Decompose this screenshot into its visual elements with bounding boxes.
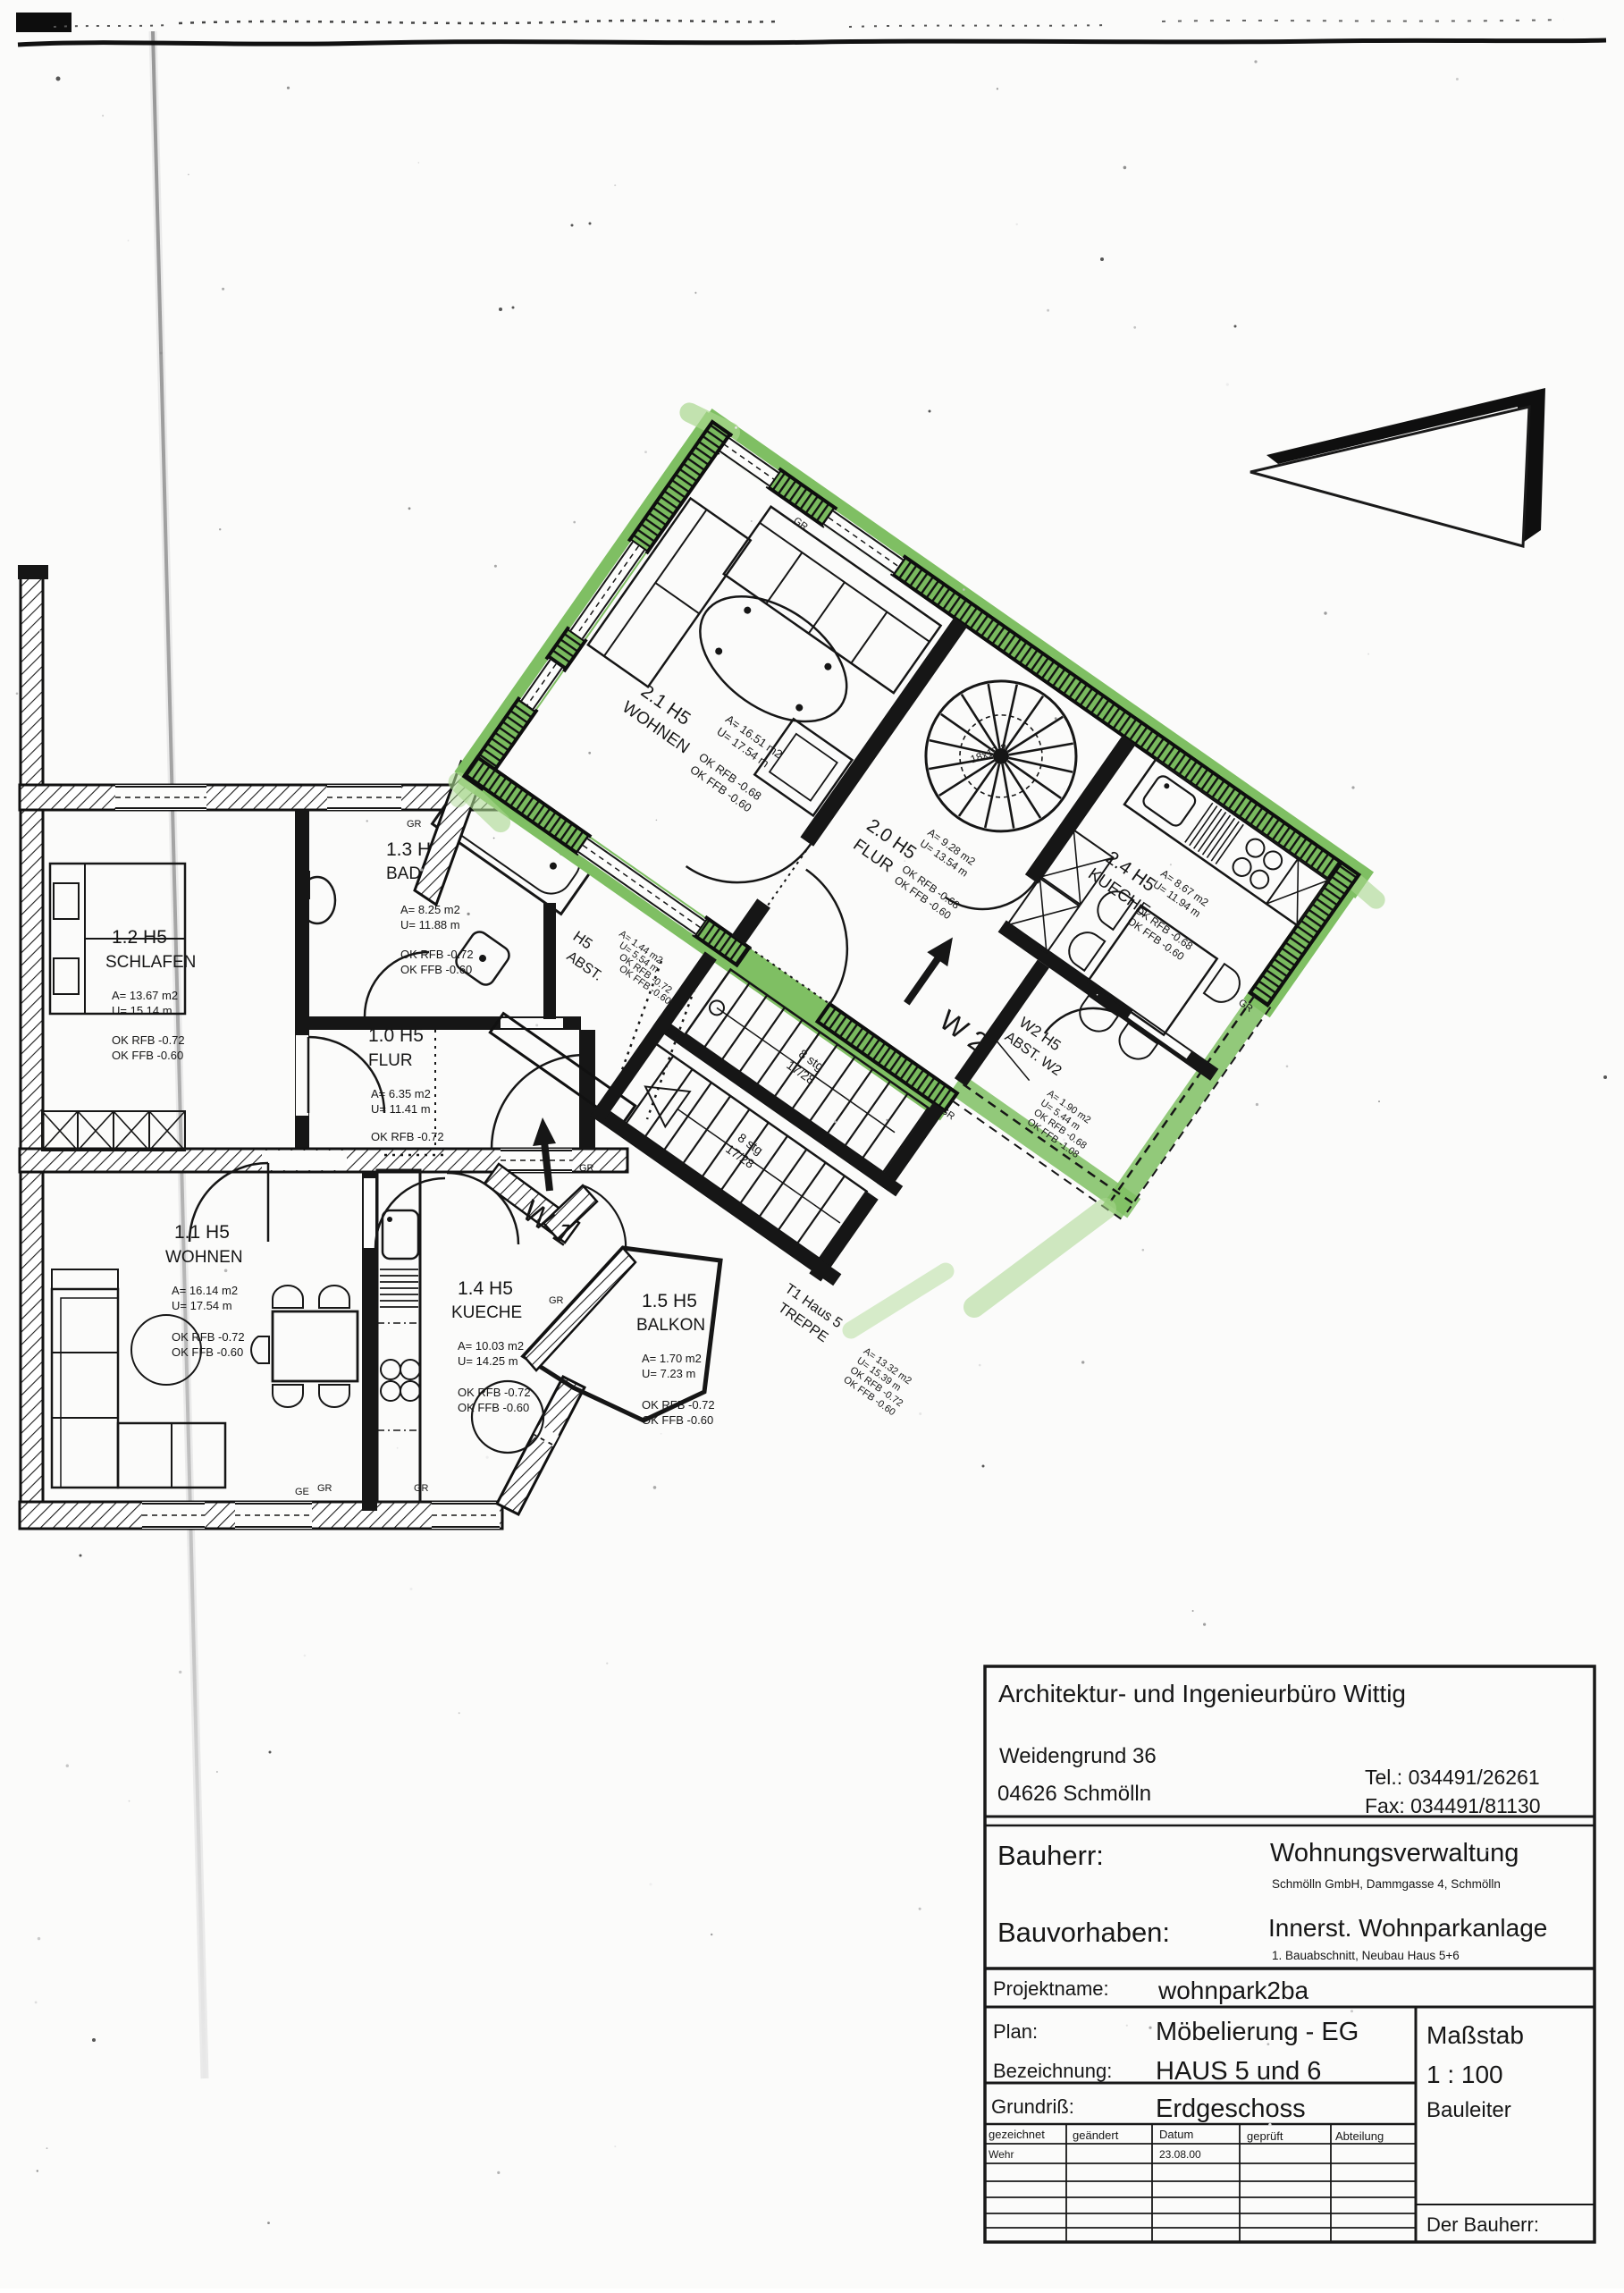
svg-text:Wohnungsverwaltung: Wohnungsverwaltung: [1270, 1839, 1519, 1867]
svg-text:SCHLAFEN: SCHLAFEN: [105, 953, 196, 972]
svg-text:A= 6.35 m2: A= 6.35 m2: [371, 1087, 431, 1100]
svg-text:Architektur- und Ingenieurbüro: Architektur- und Ingenieurbüro Wittig: [998, 1680, 1406, 1707]
svg-text:Fax: 034491/81130: Fax: 034491/81130: [1365, 1794, 1541, 1817]
svg-text:GR: GR: [414, 1483, 429, 1494]
svg-text:Der Bauherr:: Der Bauherr:: [1426, 2213, 1539, 2236]
svg-text:23.08.00: 23.08.00: [1159, 2148, 1201, 2161]
svg-text:U= 17.54 m: U= 17.54 m: [172, 1299, 232, 1312]
svg-text:A= 10.03 m2: A= 10.03 m2: [458, 1339, 524, 1353]
svg-text:U= 15.14 m: U= 15.14 m: [112, 1004, 172, 1017]
svg-text:1 : 100: 1 : 100: [1426, 2061, 1503, 2088]
svg-text:1.5 H5: 1.5 H5: [642, 1291, 697, 1311]
svg-text:Plan:: Plan:: [993, 2020, 1038, 2043]
svg-text:Bauherr:: Bauherr:: [997, 1840, 1104, 1871]
svg-text:OK RFB -0.72: OK RFB -0.72: [371, 1130, 444, 1143]
svg-text:A= 8.25 m2: A= 8.25 m2: [400, 903, 460, 916]
svg-text:Bauvorhaben:: Bauvorhaben:: [997, 1917, 1170, 1948]
svg-text:BALKON: BALKON: [636, 1316, 705, 1335]
svg-text:U= 11.88 m: U= 11.88 m: [400, 918, 460, 932]
svg-text:GE: GE: [295, 1487, 309, 1497]
svg-text:Tel.: 034491/26261: Tel.: 034491/26261: [1365, 1766, 1540, 1789]
svg-text:Bezeichnung:: Bezeichnung:: [993, 2060, 1112, 2082]
svg-text:KUECHE: KUECHE: [451, 1303, 522, 1322]
svg-text:OK RFB -0.72: OK RFB -0.72: [458, 1386, 531, 1399]
svg-text:Innerst. Wohnparkanlage: Innerst. Wohnparkanlage: [1268, 1914, 1547, 1942]
svg-text:wohnpark2ba: wohnpark2ba: [1157, 1977, 1309, 2004]
svg-text:1. Bauabschnitt, Neubau Haus 5: 1. Bauabschnitt, Neubau Haus 5+6: [1272, 1949, 1460, 1962]
svg-text:OK RFB -0.72: OK RFB -0.72: [112, 1033, 185, 1047]
svg-text:1.4 H5: 1.4 H5: [458, 1278, 513, 1299]
svg-text:1.2 H5: 1.2 H5: [112, 927, 167, 948]
svg-text:Weidengrund 36: Weidengrund 36: [999, 1744, 1157, 1768]
svg-text:OK FFB -0.60: OK FFB -0.60: [112, 1049, 183, 1062]
svg-text:WOHNEN: WOHNEN: [165, 1248, 243, 1267]
svg-text:Erdgeschoss: Erdgeschoss: [1156, 2095, 1306, 2123]
svg-text:geändert: geändert: [1073, 2129, 1119, 2142]
svg-text:A= 13.67 m2: A= 13.67 m2: [112, 989, 178, 1002]
svg-text:GR: GR: [549, 1295, 564, 1306]
svg-text:Möbelierung - EG: Möbelierung - EG: [1156, 2018, 1359, 2046]
svg-text:geprüft: geprüft: [1247, 2129, 1283, 2143]
svg-text:OK FFB -0.60: OK FFB -0.60: [172, 1345, 243, 1359]
svg-text:Datum: Datum: [1159, 2128, 1193, 2141]
svg-text:OK FFB -0.60: OK FFB -0.60: [458, 1401, 529, 1414]
svg-text:FLUR: FLUR: [368, 1051, 413, 1070]
svg-text:U= 11.41 m: U= 11.41 m: [371, 1102, 431, 1116]
svg-text:U= 14.25 m: U= 14.25 m: [458, 1354, 518, 1368]
svg-text:Bauleiter: Bauleiter: [1426, 2098, 1511, 2122]
svg-text:Wehr: Wehr: [989, 2148, 1014, 2161]
svg-text:GR: GR: [579, 1163, 594, 1174]
svg-text:OK RFB -0.72: OK RFB -0.72: [400, 948, 474, 961]
svg-text:OK FFB -0.60: OK FFB -0.60: [400, 963, 472, 976]
svg-text:1.1 H5: 1.1 H5: [174, 1222, 230, 1243]
svg-text:Maßstab: Maßstab: [1426, 2021, 1524, 2049]
svg-text:OK RFB -0.72: OK RFB -0.72: [642, 1398, 715, 1412]
svg-text:A= 1.70 m2: A= 1.70 m2: [642, 1352, 702, 1365]
svg-text:OK FFB -0.60: OK FFB -0.60: [642, 1413, 713, 1427]
svg-text:OK RFB -0.72: OK RFB -0.72: [172, 1330, 245, 1344]
svg-text:A= 16.14 m2: A= 16.14 m2: [172, 1284, 238, 1297]
svg-text:HAUS 5 und 6: HAUS 5 und 6: [1156, 2057, 1321, 2086]
svg-text:Grundriß:: Grundriß:: [991, 2095, 1074, 2118]
svg-text:1.0 H5: 1.0 H5: [368, 1025, 424, 1046]
svg-text:gezeichnet: gezeichnet: [989, 2128, 1045, 2141]
svg-text:GR: GR: [407, 819, 422, 830]
svg-text:Schmölln GmbH, Dammgasse 4, Sc: Schmölln GmbH, Dammgasse 4, Schmölln: [1272, 1877, 1501, 1891]
svg-text:Projektname:: Projektname:: [993, 1977, 1109, 2000]
svg-text:U= 7.23 m: U= 7.23 m: [642, 1367, 695, 1380]
svg-text:GR: GR: [317, 1483, 332, 1494]
svg-text:04626 Schmölln: 04626 Schmölln: [997, 1782, 1151, 1806]
svg-text:BAD: BAD: [386, 864, 421, 883]
svg-text:Abteilung: Abteilung: [1335, 2129, 1384, 2143]
